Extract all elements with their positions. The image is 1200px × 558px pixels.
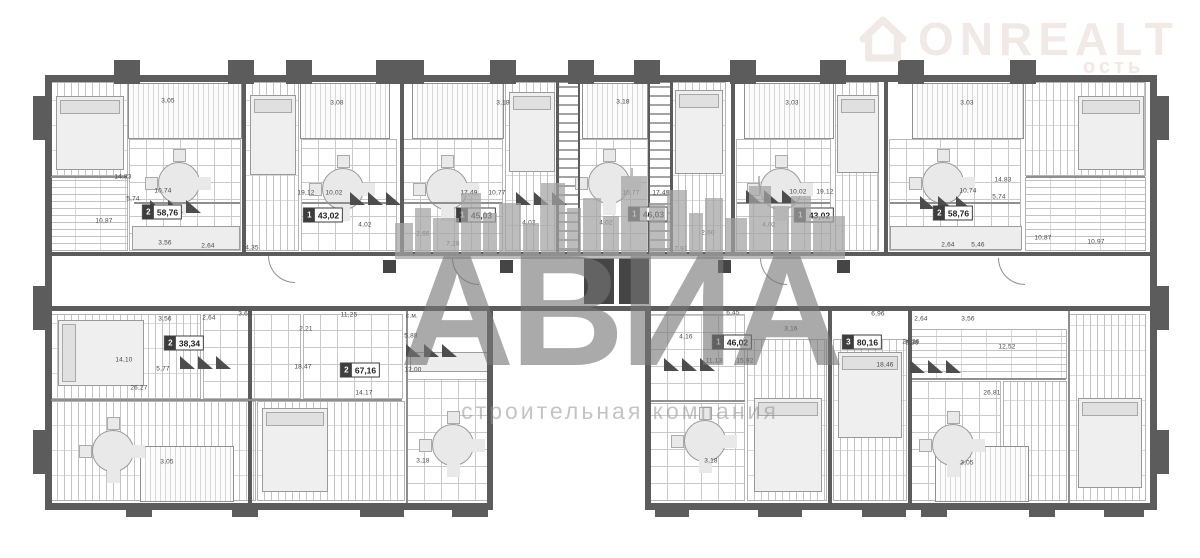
apartment-area-value: 58,76 [945, 208, 972, 218]
apartment-badge: 258,76 [933, 206, 973, 221]
balcony-stub [33, 430, 45, 474]
room-area-label: 14,83 [114, 174, 131, 181]
balcony-stub [398, 60, 424, 84]
apartment-badge: 145,03 [456, 208, 496, 223]
apartment-area-value: 80,16 [854, 337, 881, 347]
room-area-label: 3,56 [961, 316, 974, 323]
dining-table-symbol [92, 430, 134, 472]
wall [884, 81, 888, 253]
apartment-area-value: 43,02 [806, 210, 833, 220]
wall [578, 81, 580, 253]
room-area-label: 6,38 [905, 340, 918, 347]
room-area-label: 14,10 [115, 357, 132, 364]
room-area-label: 11,25 [341, 312, 358, 319]
room-area-label: 2,64 [941, 242, 954, 249]
room-floor [304, 315, 402, 398]
partition [651, 400, 745, 402]
wall [248, 311, 252, 503]
room-area-label: 3,16 [784, 326, 797, 333]
riser-shaft [500, 260, 513, 273]
room-area-label: 15,92 [736, 358, 753, 365]
apartment-rooms-count: 1 [795, 209, 806, 222]
dining-table-symbol [684, 420, 726, 462]
apartment-rooms-count: 2 [165, 337, 176, 350]
partition [1026, 176, 1145, 178]
stair-core [650, 83, 670, 250]
balcony-stub [1029, 504, 1055, 517]
room-area-label: 3,62 [238, 311, 251, 318]
balcony-stub [452, 504, 488, 517]
balcony-stub [286, 60, 312, 84]
room-area-label: 3,18 [416, 458, 429, 465]
apartment-badge: 143,02 [303, 208, 343, 223]
wall [556, 81, 559, 253]
balcony-stub [655, 504, 689, 517]
apartment-rooms-count: 2 [934, 207, 945, 220]
room-area-label: 4,02 [599, 220, 612, 227]
room-area-label: 10,02 [789, 189, 806, 196]
room-area-label: 3,03 [960, 100, 973, 107]
room-area-label: 3,18 [704, 458, 717, 465]
room-area-label: 10,02 [325, 190, 342, 197]
apartment-badge: 238,34 [164, 336, 204, 351]
balcony-stub [921, 504, 947, 517]
balcony-stub [820, 60, 846, 84]
room-area-label: 10,77 [488, 190, 505, 197]
kitchen-counter [132, 226, 240, 250]
wall [1150, 75, 1157, 510]
apartment-area-value: 67,16 [352, 365, 379, 375]
apartment-area-value: 45,03 [468, 210, 495, 220]
apartment-rooms-count: 2 [143, 206, 154, 219]
balcony-stub [1157, 286, 1169, 330]
partition [406, 311, 408, 503]
room-area-label: 19,12 [816, 189, 833, 196]
room-area-label: 18,46 [876, 362, 893, 369]
room-area-label: 5,77 [156, 366, 169, 373]
room-floor [51, 178, 127, 250]
room-area-label: 3,56 [158, 240, 171, 247]
wall [645, 306, 651, 510]
room-area-label: 3,05 [960, 460, 973, 467]
elevator-shaft [619, 258, 649, 304]
balcony-stub [1157, 430, 1169, 474]
room-area-label: 19,12 [297, 190, 314, 197]
cabinet-wedge-symbols [406, 344, 457, 357]
room-area-label: 10,74 [959, 188, 976, 195]
room-area-label: 2,21 [299, 326, 312, 333]
riser-shaft [383, 260, 396, 273]
bed-symbol [509, 92, 555, 172]
room-area-label: 5,46 [971, 242, 984, 249]
balcony-floor [912, 83, 1024, 139]
balcony-stub [568, 60, 594, 84]
room-area-label: 17,49 [460, 190, 477, 197]
loggia-floor [140, 446, 234, 502]
apartment-badge: 380,16 [842, 335, 882, 350]
partition [404, 202, 502, 204]
room-area-label: 3,18 [616, 99, 629, 106]
room-area-label: 2,64 [201, 243, 214, 250]
balcony-stub [126, 504, 152, 517]
room-area-label: 2,64 [202, 315, 215, 322]
kitchen-counter [890, 226, 1022, 250]
balcony-floor [128, 83, 242, 139]
apartment-badge: 267,16 [340, 363, 380, 378]
room-area-label: с.м. [406, 313, 418, 320]
apartment-rooms-count: 1 [713, 336, 724, 349]
apartment-badge: 258,76 [142, 205, 182, 220]
balcony-stub [1010, 60, 1036, 84]
door-arc [452, 258, 479, 285]
wall [45, 252, 1157, 256]
balcony-stub [1157, 96, 1169, 140]
room-area-label: 12,00 [404, 367, 421, 374]
balcony-stub [490, 60, 516, 84]
balcony-stub [360, 504, 404, 517]
balcony-stub [862, 504, 906, 517]
wall [45, 503, 493, 510]
room-area-label: 2,64 [914, 316, 927, 323]
wall [400, 81, 404, 253]
onrealt-logo: ONREALT [856, 12, 1179, 66]
balcony-stub [228, 60, 254, 84]
riser-shaft [718, 260, 731, 273]
apartment-rooms-count: 3 [843, 336, 854, 349]
apartment-rooms-count: 1 [629, 208, 640, 221]
bed-symbol [675, 90, 723, 174]
apartment-rooms-count: 1 [304, 209, 315, 222]
room-area-label: 10,97 [1087, 239, 1104, 246]
bed-symbol [56, 96, 124, 170]
room-area-label: 14,17 [355, 390, 372, 397]
brand-name: ONREALT [918, 12, 1179, 66]
room-area-label: 10,74 [154, 188, 171, 195]
room-area-label: 14,83 [994, 177, 1011, 184]
room-area-label: 7,91 [674, 246, 687, 253]
dining-table-symbol [158, 162, 200, 204]
balcony-stub [232, 504, 258, 517]
balcony-stub [114, 60, 140, 84]
stair-core [558, 83, 578, 250]
room-area-label: 26,81 [983, 390, 1000, 397]
room-area-label: 4,16 [679, 334, 692, 341]
apartment-badge: 146,03 [628, 207, 668, 222]
balcony-stub [33, 96, 45, 140]
room-area-label: 4,02 [522, 220, 535, 227]
room-area-label: 3,56 [158, 316, 171, 323]
balcony-stub [758, 504, 802, 517]
wall [670, 81, 673, 253]
bed-symbol [837, 95, 879, 173]
dining-table-symbol [432, 424, 474, 466]
elevator-shaft [584, 258, 614, 304]
wall [487, 306, 493, 510]
room-area-label: 3,05 [161, 98, 174, 105]
wall [45, 75, 1157, 82]
balcony-stub [730, 60, 756, 84]
balcony-stub [634, 60, 660, 84]
room-area-label: 3,05 [160, 459, 173, 466]
apartment-badge: 146,02 [712, 335, 752, 350]
apartment-rooms-count: 1 [457, 209, 468, 222]
room-area-label: 6,45 [726, 310, 739, 317]
partition [912, 378, 1066, 380]
room-area-label: 4,02 [358, 222, 371, 229]
cabinet-wedge-symbols [350, 192, 401, 205]
room-area-label: 5,74 [992, 194, 1005, 201]
bed-symbol [262, 408, 328, 492]
door-arc [760, 258, 787, 285]
wall [648, 81, 650, 253]
door-arc [268, 256, 295, 283]
room-area-label: 6,96 [871, 311, 884, 318]
bed-symbol [250, 95, 296, 175]
balcony-stub [33, 286, 45, 330]
house-icon [856, 12, 910, 66]
balcony-floor [744, 83, 834, 139]
room-area-label: 12,52 [998, 344, 1015, 351]
bed-symbol [1078, 398, 1142, 488]
door-arc [998, 258, 1025, 285]
room-area-label: 18,47 [294, 364, 311, 371]
apartment-area-value: 58,76 [154, 207, 181, 217]
bed-symbol [58, 320, 144, 386]
balcony-stub [1104, 504, 1144, 517]
room-area-label: 11,13 [706, 358, 723, 365]
room-area-label: 26,27 [130, 385, 147, 392]
cabinet-wedge-symbols [516, 192, 567, 205]
riser-shaft [837, 260, 850, 273]
balcony-floor [300, 83, 390, 139]
room-area-label: 17,49 [652, 190, 669, 197]
apartment-area-value: 46,03 [640, 209, 667, 219]
wall [828, 311, 832, 503]
dining-table-symbol [588, 162, 630, 204]
wall [45, 75, 52, 510]
room-area-label: 5,74 [126, 196, 139, 203]
partition [51, 399, 402, 401]
apartment-area-value: 46,02 [724, 337, 751, 347]
room-area-label: 10,87 [1034, 235, 1051, 242]
room-area-label: 2,66 [416, 231, 429, 238]
room-area-label: 5,88 [404, 333, 417, 340]
bed-symbol [754, 398, 822, 492]
bed-symbol [1078, 96, 1144, 170]
room-area-label: 10,77 [622, 190, 639, 197]
room-area-label: 7,28 [446, 241, 459, 248]
floor-plan-screenshot: 3,053,083,183,183,033,0314,8310,745,7410… [0, 0, 1200, 558]
room-area-label: 10,87 [95, 218, 112, 225]
wall [45, 306, 1157, 311]
room-area-label: 4,02 [762, 222, 775, 229]
balcony-floor [582, 83, 648, 139]
balcony-floor [412, 83, 504, 139]
wall [242, 81, 246, 253]
partition [1068, 311, 1070, 503]
cabinet-wedge-symbols [180, 356, 231, 369]
cabinet-wedge-symbols [910, 360, 961, 373]
apartment-area-value: 38,34 [176, 338, 203, 348]
wall [731, 81, 735, 253]
apartment-area-value: 43,02 [315, 210, 342, 220]
room-area-label: 3,18 [496, 100, 509, 107]
apartment-rooms-count: 2 [341, 364, 352, 377]
room-area-label: 3,03 [785, 100, 798, 107]
room-area-label: 3,08 [330, 100, 343, 107]
apartment-badge: 143,02 [794, 208, 834, 223]
balcony-stub [898, 60, 924, 84]
room-area-label: 2,60 [701, 230, 714, 237]
room-area-label: 4,35 [245, 245, 258, 252]
